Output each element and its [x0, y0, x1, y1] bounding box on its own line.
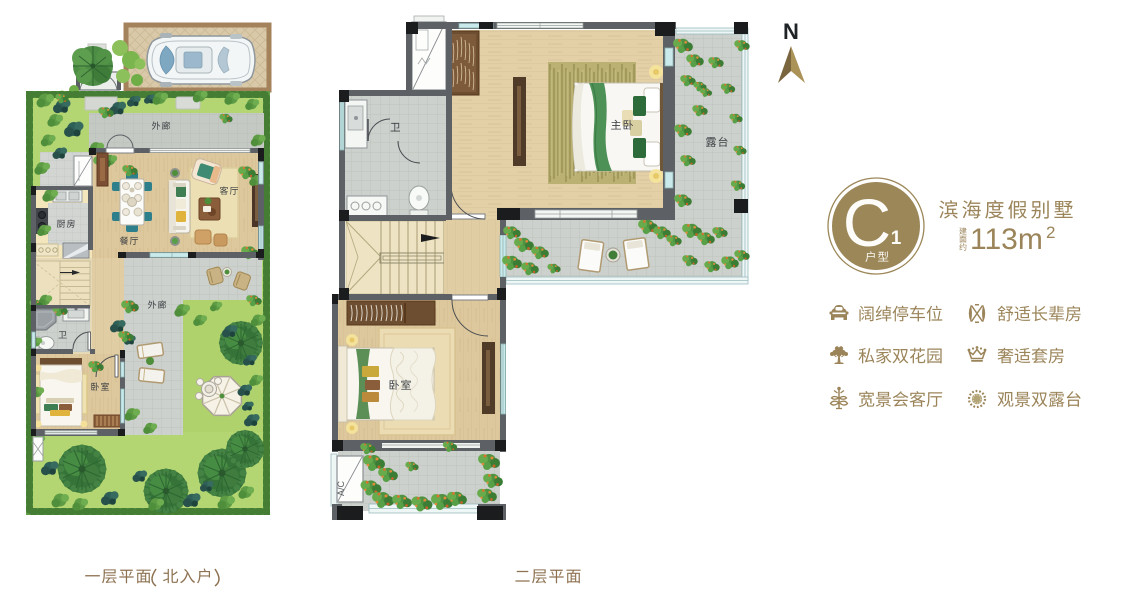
svg-text:N: N [783, 19, 799, 44]
svg-text:A/C: A/C [336, 480, 346, 496]
svg-text:C: C [843, 186, 891, 261]
svg-text:2: 2 [1046, 223, 1055, 242]
svg-text:113m: 113m [970, 223, 1043, 256]
svg-text:1: 1 [891, 228, 902, 249]
